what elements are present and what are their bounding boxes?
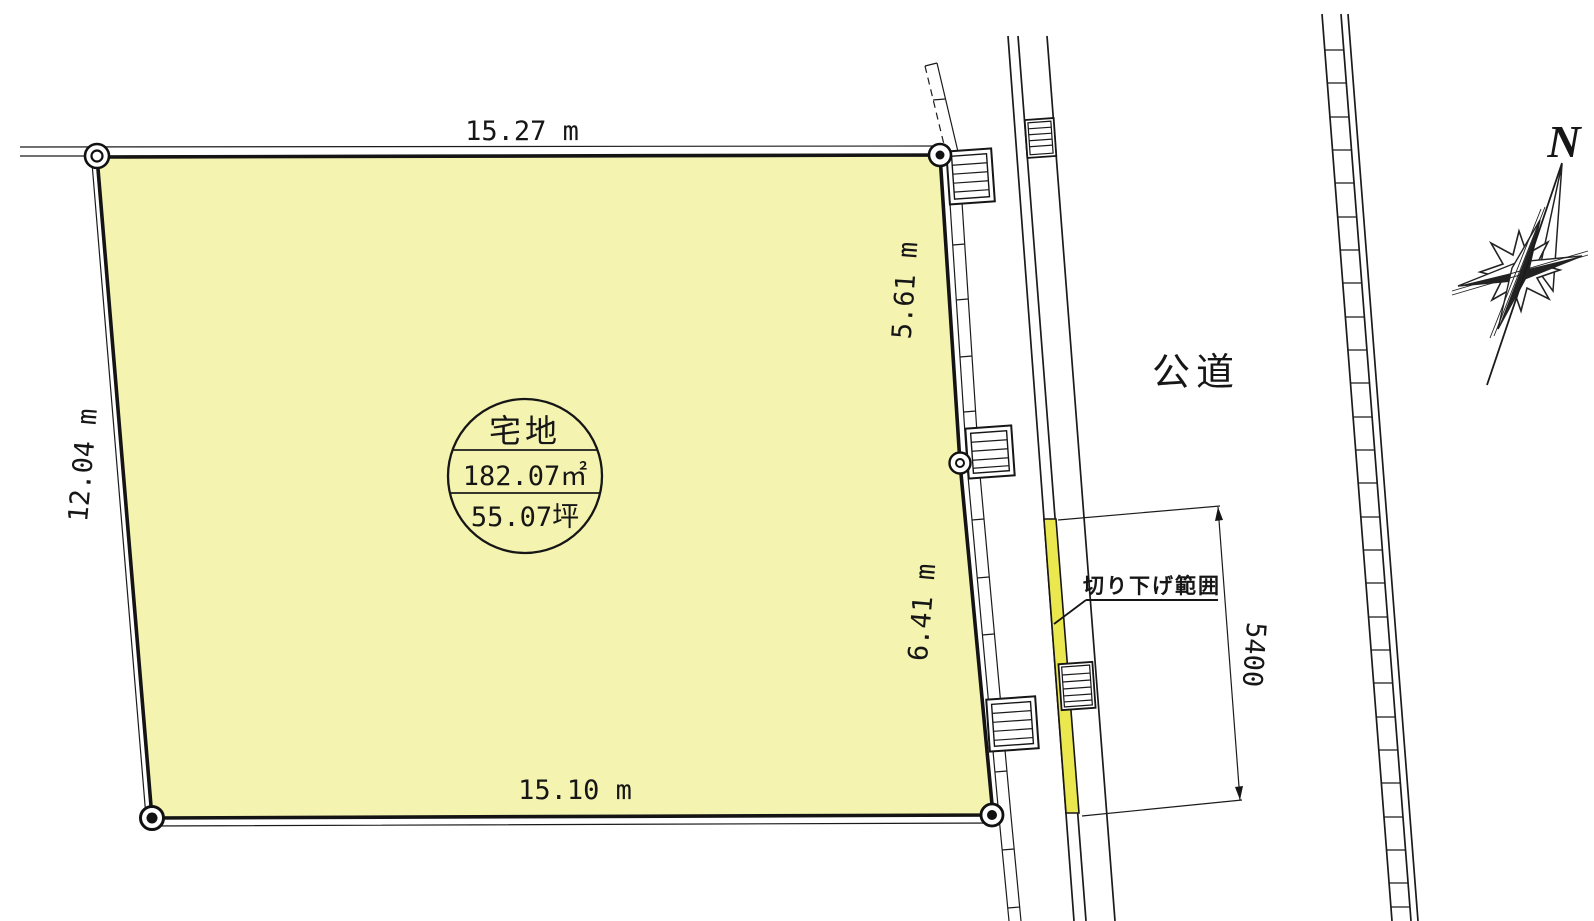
boundary-marker-mid-right bbox=[950, 453, 971, 474]
site-plan-page: 宅地 182.07㎡ 55.07坪 15.27 m 12.04 m 5.61 m… bbox=[0, 0, 1594, 921]
gutter-end-cap bbox=[925, 63, 937, 66]
catch-basin-1 bbox=[946, 148, 995, 204]
curb-cut-annotation: 切り下げ範囲 bbox=[1054, 574, 1221, 624]
dimension-arrow-top bbox=[1215, 507, 1223, 521]
dimension-extension-lines bbox=[1058, 506, 1242, 816]
parcel-area-tsubo: 55.07坪 bbox=[471, 502, 579, 533]
catch-basin-5 bbox=[1058, 662, 1095, 710]
compass-north-label: N bbox=[1546, 116, 1582, 167]
site-plan-drawing: 宅地 182.07㎡ 55.07坪 15.27 m 12.04 m 5.61 m… bbox=[0, 0, 1594, 921]
road-edge-line-3 bbox=[1047, 36, 1115, 921]
dimension-arrow-bottom bbox=[1235, 786, 1243, 800]
catch-basin-4 bbox=[1025, 118, 1057, 158]
compass-rose: N bbox=[1452, 116, 1588, 385]
curb-cut-label: 切り下げ範囲 bbox=[1083, 574, 1221, 598]
dimension-line-5400 bbox=[1218, 507, 1240, 800]
road-label: 公道 bbox=[1152, 350, 1240, 394]
dimension-left: 12.04 m bbox=[63, 407, 104, 523]
catch-basin-2 bbox=[965, 425, 1014, 478]
boundary-marker-bottom-right bbox=[981, 804, 1003, 826]
parcel-area-label: 宅地 182.07㎡ 55.07坪 bbox=[448, 399, 602, 553]
wall-line-left bbox=[1322, 14, 1392, 921]
boundary-wall bbox=[1322, 14, 1418, 921]
curb-cut-dimension: 5400 bbox=[1058, 506, 1271, 816]
dimension-bottom: 15.10 m bbox=[518, 775, 632, 806]
wall-rungs bbox=[1325, 50, 1410, 907]
parcel-area-m2: 182.07㎡ bbox=[463, 461, 588, 492]
boundary-marker-bottom-left bbox=[141, 807, 164, 830]
wall-line-right-outer bbox=[1348, 14, 1418, 921]
dimension-5400: 5400 bbox=[1236, 621, 1271, 688]
parcel-type-label: 宅地 bbox=[489, 412, 561, 450]
catch-basin-3 bbox=[986, 696, 1039, 751]
boundary-marker-top-right bbox=[929, 144, 951, 166]
dimension-top: 15.27 m bbox=[465, 116, 579, 147]
boundary-marker-top-left bbox=[85, 144, 109, 168]
